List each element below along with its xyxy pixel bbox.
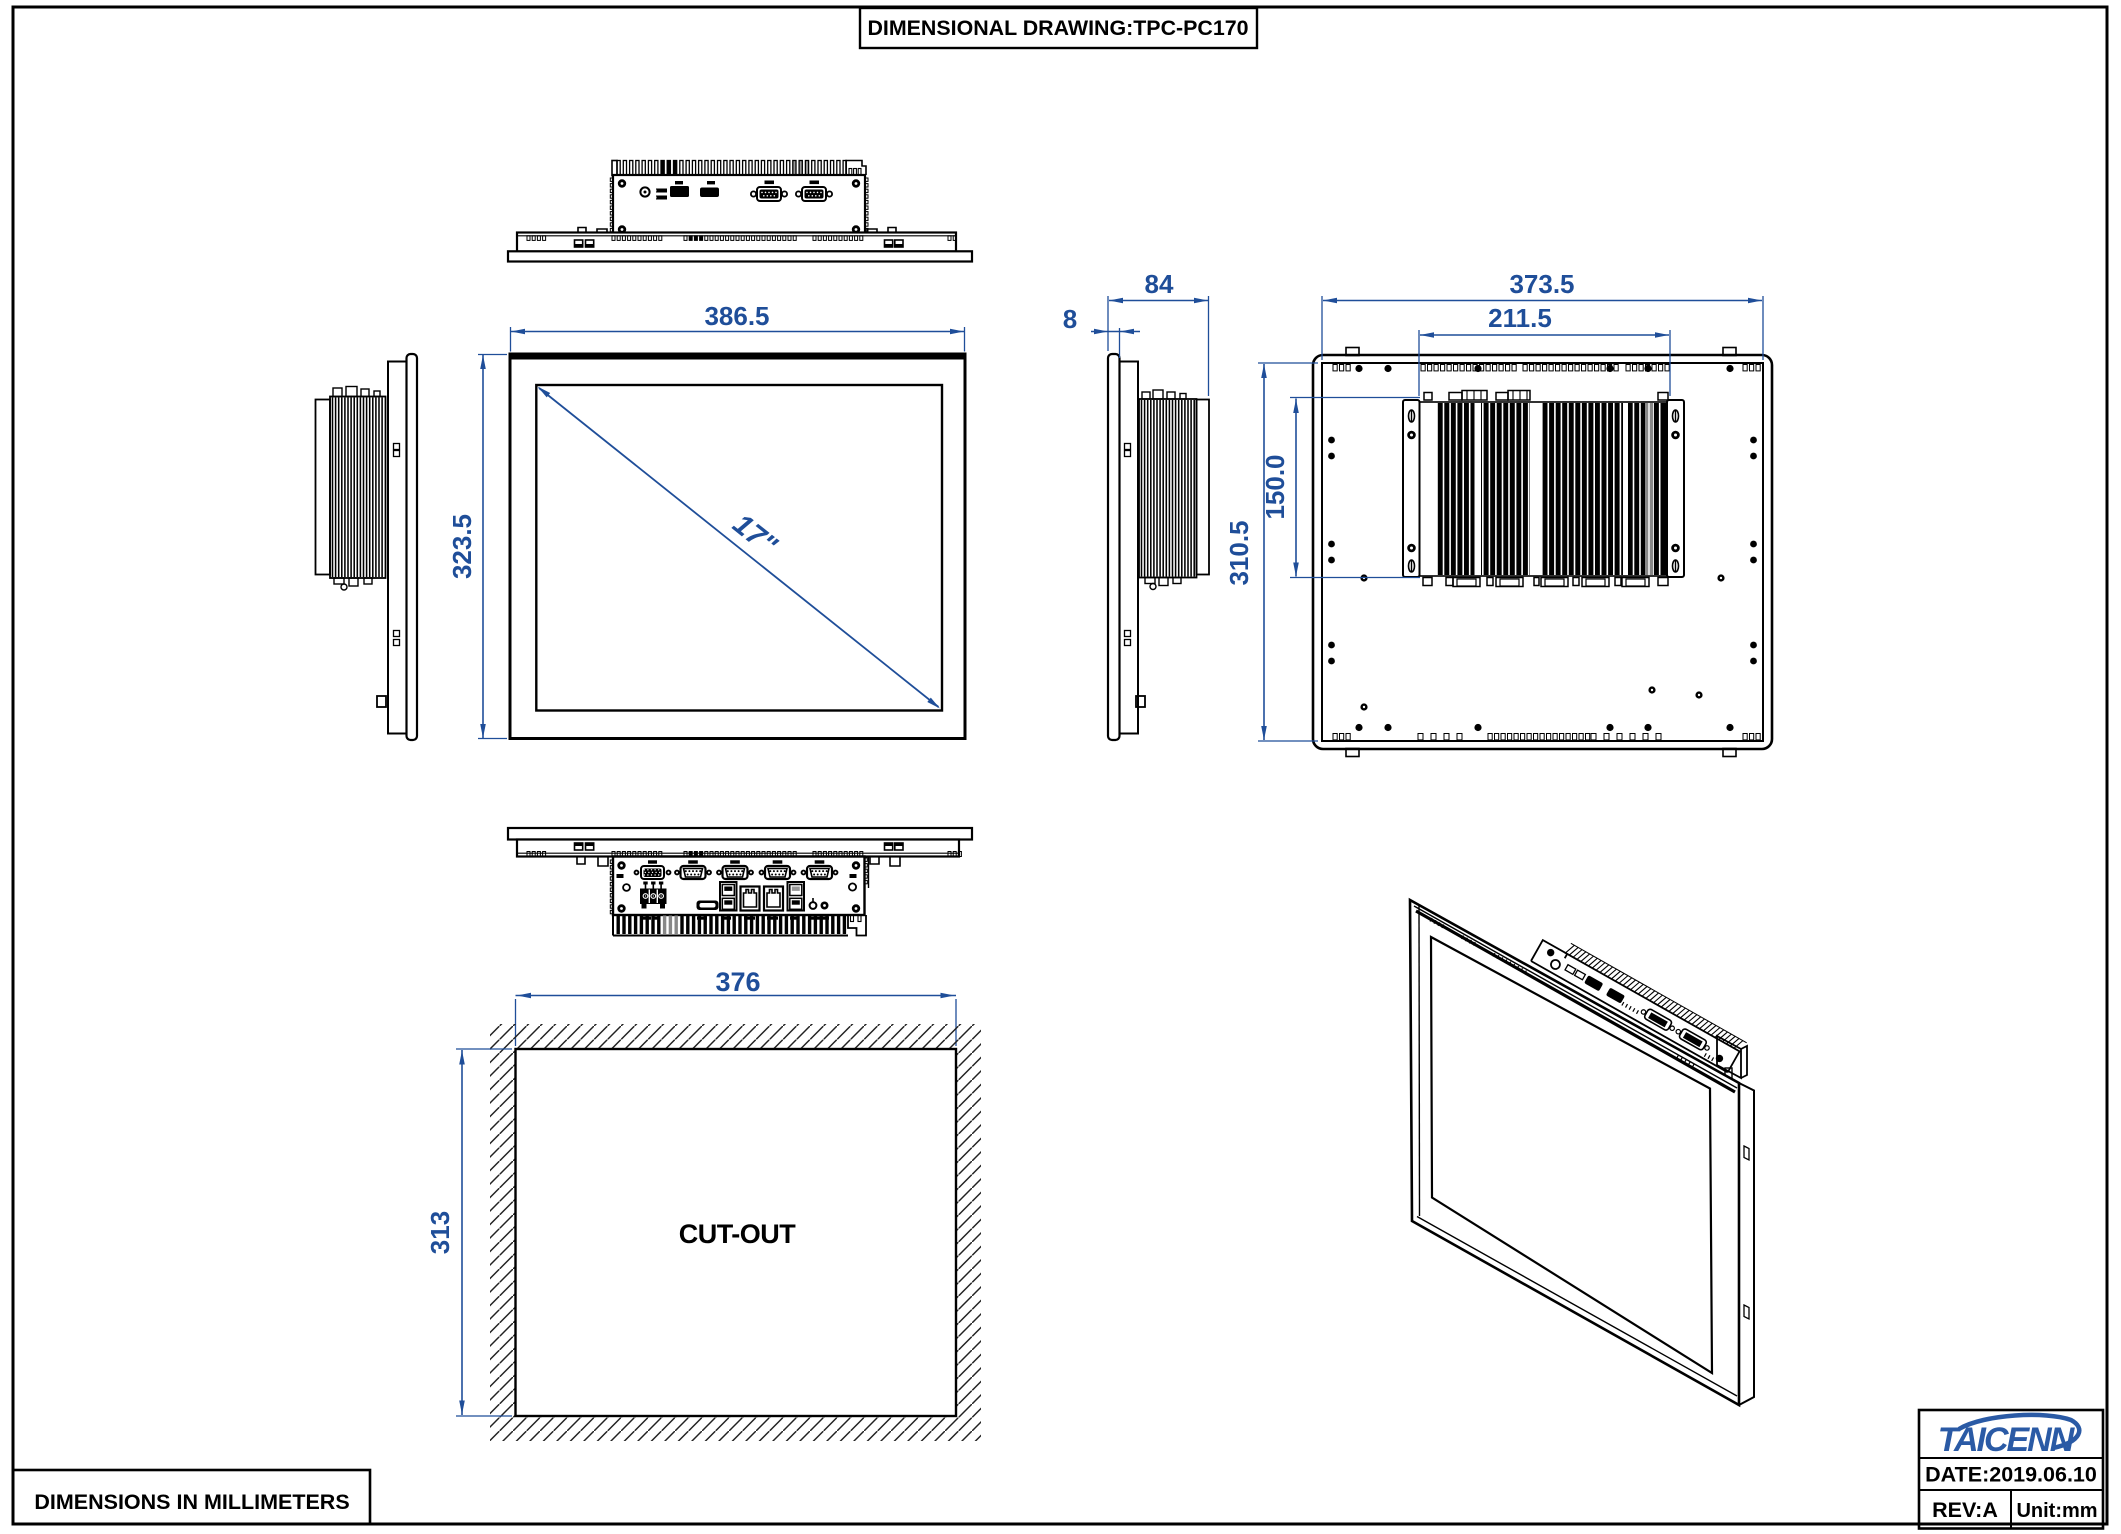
svg-text:Unit:mm: Unit:mm — [2016, 1500, 2097, 1522]
svg-text:313: 313 — [425, 1211, 455, 1254]
svg-text:CUT-OUT: CUT-OUT — [679, 1219, 796, 1249]
svg-text:8: 8 — [1063, 304, 1077, 334]
svg-text:373.5: 373.5 — [1509, 269, 1574, 299]
svg-text:84: 84 — [1145, 269, 1174, 299]
svg-text:150.0: 150.0 — [1260, 454, 1290, 519]
svg-text:386.5: 386.5 — [704, 301, 769, 331]
svg-text:REV:A: REV:A — [1932, 1498, 1998, 1522]
svg-text:DATE:2019.06.10: DATE:2019.06.10 — [1925, 1463, 2097, 1487]
svg-text:376: 376 — [715, 967, 760, 997]
svg-text:310.5: 310.5 — [1224, 520, 1254, 585]
svg-text:TAICENN: TAICENN — [1938, 1421, 2076, 1459]
svg-text:323.5: 323.5 — [447, 514, 477, 579]
svg-text:211.5: 211.5 — [1488, 303, 1552, 333]
svg-text:DIMENSIONAL DRAWING:TPC-PC170: DIMENSIONAL DRAWING:TPC-PC170 — [867, 16, 1248, 40]
svg-text:DIMENSIONS IN MILLIMETERS: DIMENSIONS IN MILLIMETERS — [34, 1490, 349, 1514]
